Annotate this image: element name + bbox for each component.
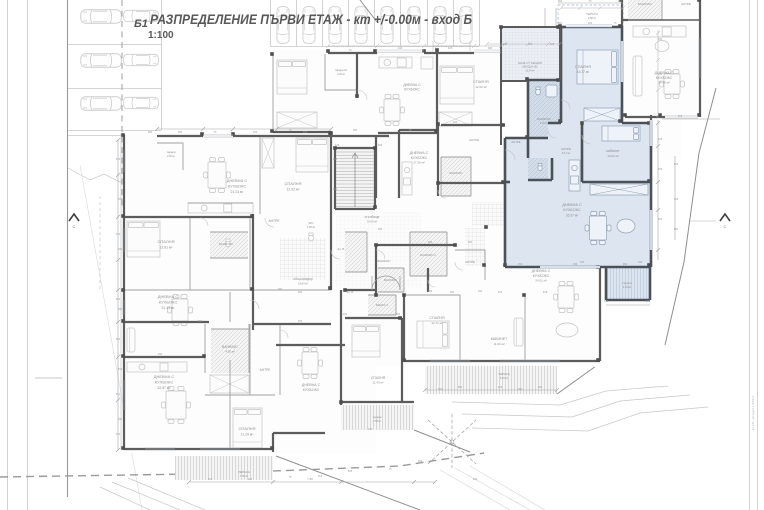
svg-text:11.24 м²: 11.24 м² [241,432,255,436]
svg-text:5.17 м²: 5.17 м² [562,151,570,155]
svg-text:АНТРЕ: АНТРЕ [268,219,280,223]
svg-text:960: 960 [538,385,543,389]
svg-text:150: 150 [353,128,358,132]
svg-text:150: 150 [118,197,123,201]
svg-text:КУХБОКС: КУХБОКС [411,156,428,160]
svg-text:АНТРЕ: АНТРЕ [511,140,520,144]
svg-text:300: 300 [118,247,123,251]
svg-text:БАНЯ/WC: БАНЯ/WC [449,171,462,175]
svg-text:425: 425 [543,290,548,294]
svg-text:960: 960 [298,290,303,294]
svg-text:22.87 м²: 22.87 м² [158,386,172,390]
svg-text:АНТРЕ: АНТРЕ [469,138,479,142]
svg-text:12.02 м²: 12.02 м² [475,85,487,89]
svg-text:425: 425 [674,197,679,201]
svg-text:150: 150 [158,352,163,356]
svg-text:2.96 м²: 2.96 м² [307,225,315,229]
svg-text:АНТРЕ: АНТРЕ [260,368,271,372]
svg-text:300: 300 [116,392,121,396]
svg-text:27.26 м²: 27.26 м² [413,161,425,165]
svg-text:425: 425 [550,42,555,46]
svg-text:240: 240 [658,72,663,76]
svg-text:360: 360 [198,319,203,323]
svg-text:11.62 м²: 11.62 м² [493,342,504,346]
svg-text:150: 150 [428,289,433,293]
svg-text:360: 360 [248,477,253,481]
svg-text:150: 150 [298,319,303,323]
svg-text:960: 960 [378,143,383,147]
svg-text:360: 360 [488,46,493,50]
svg-text:ВАНЯ/WC: ВАНЯ/WC [377,259,390,263]
svg-text:16.37 м²: 16.37 м² [577,70,590,74]
svg-text:75: 75 [589,0,592,3]
svg-text:150: 150 [253,130,258,134]
svg-text:КУХБОКС: КУХБОКС [155,379,174,384]
svg-text:КУХБОКС: КУХБОКС [404,88,420,92]
svg-text:C: C [724,224,727,229]
svg-text:150: 150 [658,217,663,221]
svg-text:75: 75 [389,467,392,471]
svg-text:СПАЛНЯ: СПАЛНЯ [239,426,256,431]
svg-text:ДНЕВНА С: ДНЕВНА С [154,374,175,379]
svg-text:общ.коридор: общ.коридор [293,277,312,281]
svg-text:300: 300 [604,299,609,303]
svg-text:300: 300 [646,299,651,303]
svg-text:515: 515 [118,367,123,371]
svg-text:425: 425 [658,137,663,141]
svg-text:960: 960 [618,0,623,3]
svg-text:КУХБОКС: КУХБОКС [159,299,178,304]
svg-text:150: 150 [116,157,121,161]
svg-text:21.13 м²: 21.13 м² [231,190,245,194]
svg-text:150: 150 [118,417,123,421]
svg-text:вх. Б: вх. Б [347,290,354,294]
svg-text:515: 515 [674,162,679,166]
svg-text:425: 425 [448,46,453,50]
svg-text:АНТРЕ: АНТРЕ [561,147,571,151]
svg-text:150: 150 [658,37,663,41]
svg-text:гардероб: гардероб [335,68,347,72]
svg-text:300: 300 [116,297,121,301]
svg-text:515: 515 [438,387,443,391]
svg-text:240: 240 [453,120,458,124]
svg-text:21.13 м²: 21.13 м² [162,306,176,310]
svg-text:425: 425 [333,157,338,161]
svg-text:тераса: тераса [373,415,382,419]
svg-text:ТЕРАСА: ТЕРАСА [498,372,510,376]
svg-text:КУХБОКС: КУХБОКС [533,274,550,278]
svg-text:240: 240 [116,432,121,436]
svg-text:ДНЕВНА С: ДНЕВНА С [158,294,179,299]
svg-text:960: 960 [118,307,123,311]
svg-text:515: 515 [208,477,213,481]
svg-text:тераса: тераса [167,150,176,154]
svg-text:515: 515 [678,114,683,118]
svg-text:РАЗПРЕДЕЛЕНИЕ ПЪРВИ ЕТАЖ - кт: РАЗПРЕДЕЛЕНИЕ ПЪРВИ ЕТАЖ - кт +/-0.00м -… [150,12,472,27]
svg-text:300: 300 [468,240,473,244]
svg-text:тераса: тераса [622,281,632,285]
svg-text:7.60: 7.60 [307,477,313,481]
svg-text:960: 960 [418,459,423,463]
svg-text:C: C [73,224,76,229]
svg-text:360: 360 [558,21,563,25]
svg-text:КУХБОКС: КУХБОКС [303,388,320,392]
svg-text:425: 425 [498,385,503,389]
svg-text:75: 75 [289,475,292,479]
svg-text:ДНЕВНА С: ДНЕВНА С [532,269,551,273]
svg-text:425: 425 [335,143,340,147]
svg-text:75: 75 [614,21,617,25]
svg-text:960: 960 [674,227,679,231]
svg-text:360: 360 [116,337,121,341]
svg-text:150: 150 [580,260,585,264]
svg-text:СПАЛНЯ: СПАЛНЯ [285,181,302,186]
svg-text:ТЕРАСА: ТЕРАСА [238,470,250,474]
svg-text:240: 240 [368,427,373,431]
svg-text:КУХБОКС: КУХБОКС [228,183,247,188]
svg-text:БАНЯ/WC 2: БАНЯ/WC 2 [420,253,436,257]
svg-text:26.57 м²: 26.57 м² [566,213,579,217]
svg-text:МАЗЕ ОТ СЕКЦИЯ: МАЗЕ ОТ СЕКЦИЯ [518,61,542,65]
svg-text:СПАЛНЯ: СПАЛНЯ [429,316,445,320]
svg-text:150: 150 [658,167,663,171]
svg-text:960: 960 [148,130,153,134]
svg-text:24.51 м²: 24.51 м² [535,279,547,283]
svg-text:240: 240 [503,42,508,46]
svg-text:150: 150 [573,262,578,266]
svg-text:WC: WC [309,221,315,225]
svg-text:ТЕРАСА: ТЕРАСА [586,12,598,16]
svg-text:5.16 м²: 5.16 м² [500,376,508,380]
svg-text:300: 300 [588,21,593,25]
svg-text:360: 360 [303,130,308,134]
svg-text:СПАЛНЯ: СПАЛНЯ [575,65,591,69]
svg-text:515: 515 [348,469,353,473]
svg-text:arch. project 2021: arch. project 2021 [751,396,755,430]
svg-text:ДНЕВНА С: ДНЕВНА С [302,383,321,387]
svg-text:10.00 м²: 10.00 м² [367,219,377,223]
svg-text:3.58 м²: 3.58 м² [588,16,596,20]
svg-text:СПАЛНЯ: СПАЛНЯ [158,239,175,244]
svg-text:ДНЕВНА С: ДНЕВНА С [227,178,248,183]
svg-text:960: 960 [428,240,433,244]
svg-text:11.43 м²: 11.43 м² [373,381,384,385]
svg-text:13.01 м²: 13.01 м² [607,154,619,158]
svg-text:515: 515 [318,474,323,478]
svg-text:150: 150 [116,232,121,236]
svg-text:Б1: Б1 [134,18,148,30]
svg-text:300: 300 [278,287,283,291]
svg-text:960: 960 [623,262,628,266]
svg-text:БАНЯ/WC: БАНЯ/WC [537,117,552,121]
svg-text:вх. Б: вх. Б [338,247,345,251]
svg-text:24.48 м²: 24.48 м² [658,81,670,85]
svg-text:240: 240 [398,46,403,50]
svg-text:1:100: 1:100 [148,30,174,41]
svg-text:ВАНЯ/С 2: ВАНЯ/С 2 [376,303,388,307]
svg-text:АНТРЕ: АНТРЕ [681,2,691,6]
svg-text:150: 150 [343,312,348,316]
svg-text:150: 150 [518,262,523,266]
svg-text:150: 150 [378,227,383,231]
svg-text:12.71 м²: 12.71 м² [431,321,443,325]
svg-text:2.26 м²: 2.26 м² [337,73,345,76]
svg-text:2.50 м²: 2.50 м² [167,155,175,158]
svg-text:БАНЯ/WC: БАНЯ/WC [638,2,653,6]
svg-text:12.02 м²: 12.02 м² [287,187,301,191]
svg-text:515: 515 [498,290,503,294]
svg-text:ДНЕВНА С: ДНЕВНА С [403,83,421,87]
svg-text:4.20 м²: 4.20 м² [540,121,548,125]
svg-text:360: 360 [450,290,455,294]
svg-text:13.81 м²: 13.81 м² [160,245,174,249]
svg-text:стълбище: стълбище [365,215,380,219]
svg-text:ВАНЯ/WC: ВАНЯ/WC [384,278,396,282]
svg-text:360: 360 [518,387,523,391]
svg-text:4.10 м²: 4.10 м² [623,285,631,289]
svg-text:КУХБОКС: КУХБОКС [656,76,673,80]
svg-text:кабинет: кабинет [606,149,620,153]
svg-text:960: 960 [396,312,401,316]
svg-text:19.84 м²: 19.84 м² [298,281,308,285]
svg-text:4.05 м²: 4.05 м² [225,350,234,354]
svg-text:4.58 м²: 4.58 м² [373,420,381,423]
svg-text:(ВХОД А+Б): (ВХОД А+Б) [523,65,538,69]
svg-text:150: 150 [528,42,533,46]
svg-text:240: 240 [638,260,643,264]
svg-text:300: 300 [473,477,478,481]
svg-text:360: 360 [333,187,338,191]
svg-text:360: 360 [558,0,563,3]
svg-text:150: 150 [478,289,483,293]
svg-text:АНТРЕ: АНТРЕ [465,260,475,264]
svg-text:ВАНЯ/WC: ВАНЯ/WC [222,345,238,349]
svg-text:960: 960 [458,385,463,389]
svg-text:СПАЛНЯ: СПАЛНЯ [473,80,489,84]
svg-text:КАБИНЕТ: КАБИНЕТ [491,337,508,341]
svg-text:960: 960 [178,130,183,134]
svg-text:БАНЯ/WC: БАНЯ/WC [219,242,234,246]
svg-text:КУХБОКС: КУХБОКС [563,208,581,212]
svg-text:СПАЛНЯ: СПАЛНЯ [371,376,386,380]
svg-text:22.04 м²: 22.04 м² [526,69,535,72]
svg-text:ДНЕВНА С: ДНЕВНА С [410,151,429,155]
svg-text:ДНЕВНА С: ДНЕВНА С [562,203,582,207]
